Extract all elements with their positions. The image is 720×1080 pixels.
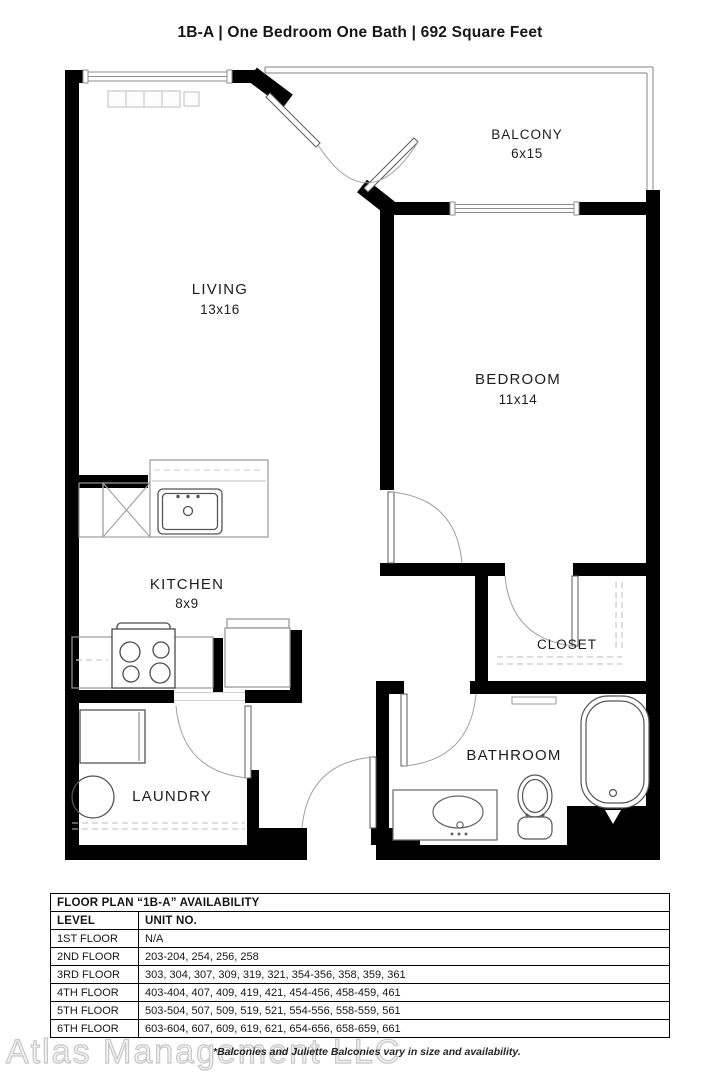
balcony-door-arc [318, 142, 418, 183]
table-row: 1ST FLOOR N/A [51, 930, 670, 948]
room-label-living: LIVING [192, 281, 248, 298]
kitchen-sink [158, 489, 222, 534]
washer [80, 710, 145, 763]
closet-door-arc [505, 576, 575, 646]
table-row: 2ND FLOOR 203-204, 254, 256, 258 [51, 948, 670, 966]
balcony-rail [265, 67, 653, 192]
level-cell: 5TH FLOOR [51, 1002, 139, 1020]
baseboard-heater [108, 91, 199, 107]
living-window [83, 70, 232, 83]
level-cell: 3RD FLOOR [51, 966, 139, 984]
room-dims-kitchen: 8x9 [175, 596, 199, 611]
balcony-door-leaf-right [364, 138, 418, 192]
closet-door-leaf [572, 576, 578, 646]
units-cell: N/A [139, 930, 670, 948]
units-cell: 203-204, 254, 256, 258 [139, 948, 670, 966]
refrigerator [225, 619, 290, 687]
table-header-row: LEVEL UNIT NO. [51, 912, 670, 930]
table-row: 5TH FLOOR 503-504, 507, 509, 519, 521, 5… [51, 1002, 670, 1020]
laundry-door-arc [176, 706, 248, 778]
floor-plan: BALCONY 6x15 LIVING 13x16 BEDROOM 11x14 … [0, 0, 720, 890]
bathroom-shelf [512, 697, 556, 704]
bathtub [581, 696, 649, 808]
balcony-door-leaf-left [266, 93, 320, 147]
bedroom-door-arc [391, 492, 462, 563]
units-cell: 403-404, 407, 409, 419, 421, 454-456, 45… [139, 984, 670, 1002]
laundry-door-leaf [245, 706, 251, 778]
room-label-kitchen: KITCHEN [150, 576, 224, 593]
room-dims-bedroom: 11x14 [499, 392, 538, 407]
dishwasher [103, 483, 150, 537]
col-header-unit-no: UNIT NO. [139, 912, 670, 930]
floor-plan-svg: BALCONY 6x15 LIVING 13x16 BEDROOM 11x14 … [0, 0, 720, 890]
level-cell: 1ST FLOOR [51, 930, 139, 948]
room-label-bathroom: BATHROOM [466, 747, 561, 764]
bathroom-door-arc [404, 694, 476, 766]
table-title: FLOOR PLAN “1B-A” AVAILABILITY [51, 894, 670, 912]
toilet [518, 775, 552, 839]
table-title-row: FLOOR PLAN “1B-A” AVAILABILITY [51, 894, 670, 912]
entry-door-leaf [370, 757, 376, 828]
room-dims-balcony: 6x15 [511, 146, 543, 161]
room-label-bedroom: BEDROOM [475, 371, 561, 388]
room-label-balcony: BALCONY [491, 127, 563, 142]
balcony-note: *Balconies and Juliette Balconies vary i… [213, 1046, 521, 1058]
bathroom-door-leaf [401, 694, 407, 766]
threshold-lines [174, 693, 245, 701]
room-label-laundry: LAUNDRY [132, 788, 212, 805]
table-row: 4TH FLOOR 403-404, 407, 409, 419, 421, 4… [51, 984, 670, 1002]
room-label-closet: CLOSET [537, 637, 597, 652]
room-dims-living: 13x16 [200, 302, 240, 317]
table-row: 3RD FLOOR 303, 304, 307, 309, 319, 321, … [51, 966, 670, 984]
level-cell: 4TH FLOOR [51, 984, 139, 1002]
level-cell: 2ND FLOOR [51, 948, 139, 966]
entry-door-arc [302, 757, 373, 828]
stove [112, 623, 175, 688]
bedroom-window [450, 202, 579, 215]
bedroom-door-leaf [388, 492, 394, 563]
units-cell: 503-504, 507, 509, 519, 521, 554-556, 55… [139, 1002, 670, 1020]
col-header-level: LEVEL [51, 912, 139, 930]
units-cell: 303, 304, 307, 309, 319, 321, 354-356, 3… [139, 966, 670, 984]
availability-table: FLOOR PLAN “1B-A” AVAILABILITY LEVEL UNI… [50, 893, 670, 1038]
vanity-sink [393, 790, 497, 840]
